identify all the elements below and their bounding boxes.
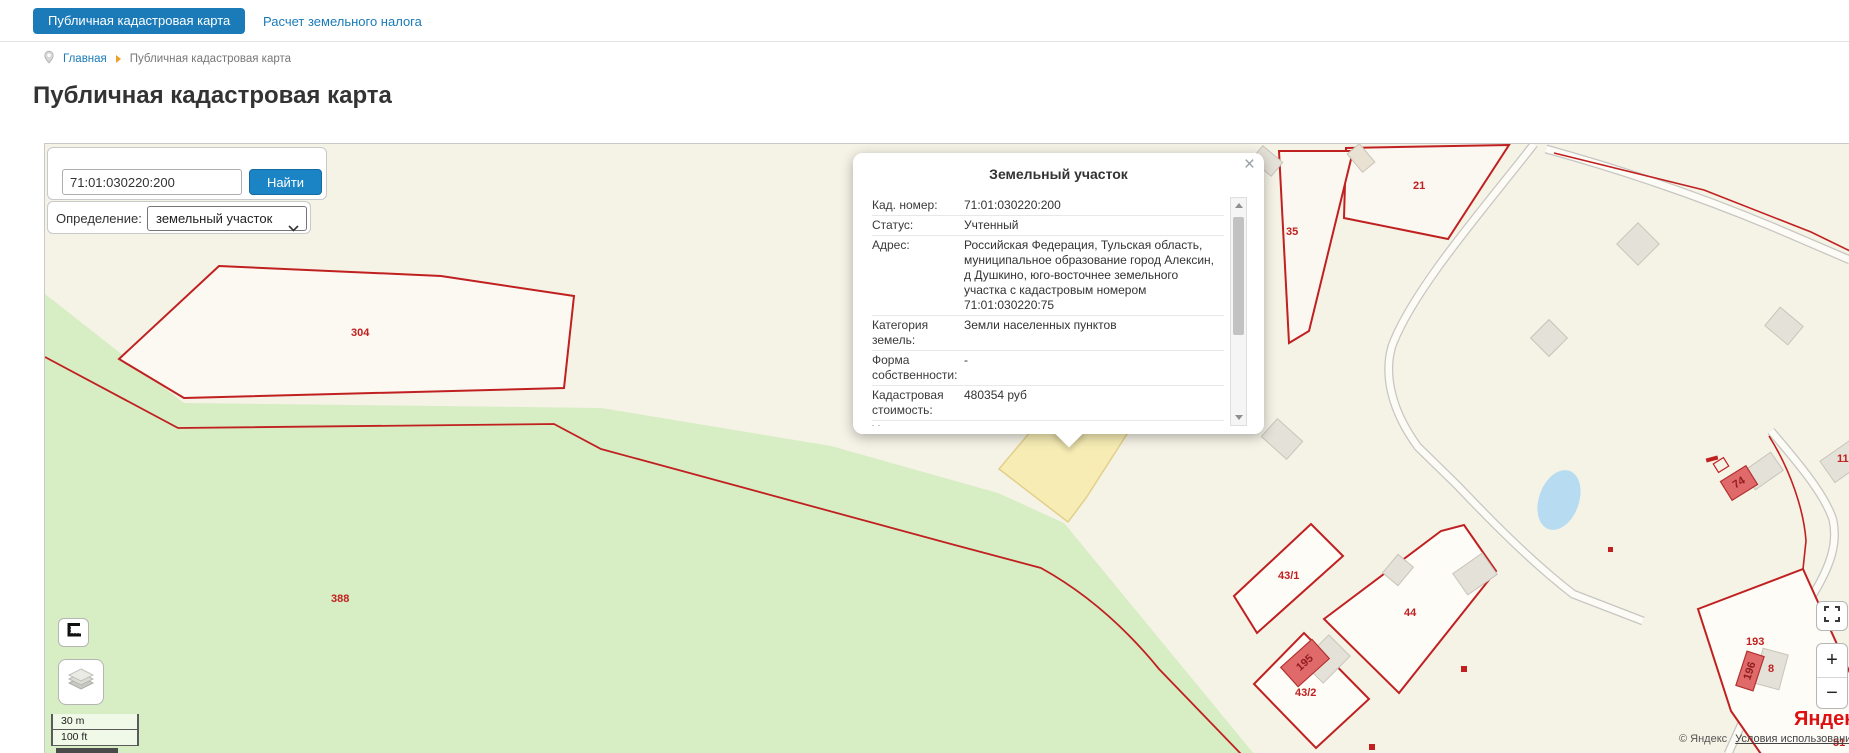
row-label: Уточненная <box>872 423 964 426</box>
parcel-label-43-2: 43/2 <box>1295 687 1316 699</box>
layers-button[interactable] <box>58 659 104 705</box>
row-label: Категория земель: <box>872 318 964 348</box>
page-title: Публичная кадастровая карта <box>33 82 392 110</box>
table-row: Статус: Учтенный <box>872 216 1224 236</box>
fullscreen-icon <box>1824 606 1840 627</box>
table-row: Кад. номер: 71:01:030220:200 <box>872 196 1224 216</box>
search-button[interactable]: Найти <box>249 169 322 195</box>
popup-attribute-table: Кад. номер: 71:01:030220:200 Статус: Учт… <box>872 196 1224 426</box>
header-divider <box>0 41 1849 42</box>
zoom-in-button[interactable]: + <box>1817 644 1847 677</box>
definition-panel: Определение: земельный участок <box>47 201 311 234</box>
row-label: Адрес: <box>872 238 964 313</box>
search-panel: Найти <box>47 147 327 200</box>
parcel-label-35: 35 <box>1286 226 1298 238</box>
scale-metric: 30 m <box>51 714 139 730</box>
building-label-8: 8 <box>1768 663 1774 675</box>
zoom-out-button[interactable]: − <box>1817 677 1847 710</box>
row-label: Форма собственности: <box>872 353 964 383</box>
cadastral-number-input[interactable] <box>62 169 242 195</box>
cadastral-map[interactable]: 304 388 21 35 43/1 44 43/2 193 195 196 8… <box>44 143 1849 753</box>
table-row: Адрес: Российская Федерация, Тульская об… <box>872 236 1224 316</box>
row-value: Земли населенных пунктов <box>964 318 1220 348</box>
popup-scrollbar[interactable] <box>1230 197 1247 426</box>
breadcrumb-arrow-icon <box>116 55 121 63</box>
parcel-label-11: 11 <box>1837 453 1849 465</box>
table-row-clipped: Уточненная <box>872 421 1224 426</box>
row-label: Кад. номер: <box>872 198 964 213</box>
row-value <box>964 423 1220 426</box>
row-label: Статус: <box>872 218 964 233</box>
copyright-text: © Яндекс <box>1679 733 1727 745</box>
row-label: Кадастровая стоимость: <box>872 388 964 418</box>
parcel-label-388: 388 <box>331 593 349 605</box>
measure-ruler-button[interactable] <box>58 618 89 647</box>
popup-title: Земельный участок <box>853 166 1264 182</box>
zoom-divider <box>1817 677 1847 678</box>
parcel-label-44: 44 <box>1404 607 1416 619</box>
fullscreen-button[interactable] <box>1816 601 1848 631</box>
row-value: 71:01:030220:200 <box>964 198 1220 213</box>
cadastral-map-page: { "tabs": { "active": "Публичная кадастр… <box>0 0 1849 753</box>
scale-bar: 30 m 100 ft <box>51 714 139 746</box>
tab-public-cadastral-map[interactable]: Публичная кадастровая карта <box>33 8 245 34</box>
scrollbar-thumb[interactable] <box>1233 217 1244 335</box>
definition-select-value: земельный участок <box>156 211 272 226</box>
close-icon[interactable]: × <box>1244 154 1255 176</box>
chevron-down-icon <box>288 216 299 239</box>
layers-icon <box>67 668 95 697</box>
map-pin-icon <box>44 50 54 67</box>
definition-select[interactable]: земельный участок <box>147 206 307 231</box>
scale-imperial: 100 ft <box>51 730 139 746</box>
row-value: - <box>964 353 1220 383</box>
breadcrumb-current: Публичная кадастровая карта <box>130 53 291 65</box>
map-attribution: © ЯндексУсловия использования <box>1679 733 1849 745</box>
popup-body: × Земельный участок Кад. номер: 71:01:03… <box>853 153 1264 434</box>
ruler-icon <box>65 621 83 644</box>
parcel-label-304: 304 <box>351 327 369 339</box>
table-row: Кадастровая стоимость: 480354 руб <box>872 386 1224 421</box>
row-value: Российская Федерация, Тульская область, … <box>964 238 1220 313</box>
row-value: 480354 руб <box>964 388 1220 418</box>
yandex-logo: Яндекс <box>1794 708 1849 731</box>
breadcrumb: Главная Публичная кадастровая карта <box>44 50 291 67</box>
table-row: Форма собственности: - <box>872 351 1224 386</box>
terms-of-use-link[interactable]: Условия использования <box>1735 733 1849 745</box>
parcel-label-193: 193 <box>1746 636 1764 648</box>
clipped-footer-strip <box>56 748 118 753</box>
scroll-up-icon[interactable] <box>1231 198 1246 213</box>
row-value: Учтенный <box>964 218 1220 233</box>
breadcrumb-home-link[interactable]: Главная <box>63 53 107 65</box>
scroll-down-icon[interactable] <box>1231 410 1246 425</box>
table-row: Категория земель: Земли населенных пункт… <box>872 316 1224 351</box>
definition-label: Определение: <box>56 211 142 226</box>
tab-land-tax-calc[interactable]: Расчет земельного налога <box>263 14 422 29</box>
parcel-label-43-1: 43/1 <box>1278 570 1299 582</box>
zoom-control: + − <box>1816 643 1848 709</box>
parcel-label-21: 21 <box>1413 180 1425 192</box>
parcel-info-popup: × Земельный участок Кад. номер: 71:01:03… <box>853 153 1264 434</box>
